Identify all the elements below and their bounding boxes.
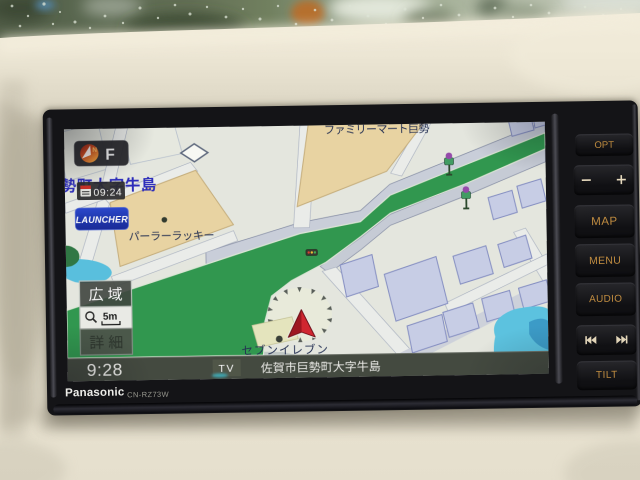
svg-text:TV: TV [218, 363, 235, 375]
svg-text:5m: 5m [103, 312, 118, 323]
svg-text:F: F [105, 147, 115, 164]
svg-text:LAUNCHER: LAUNCHER [76, 214, 129, 225]
svg-text:09:24: 09:24 [93, 186, 122, 198]
svg-text:N: N [92, 147, 97, 154]
svg-text:9:28: 9:28 [87, 359, 123, 380]
